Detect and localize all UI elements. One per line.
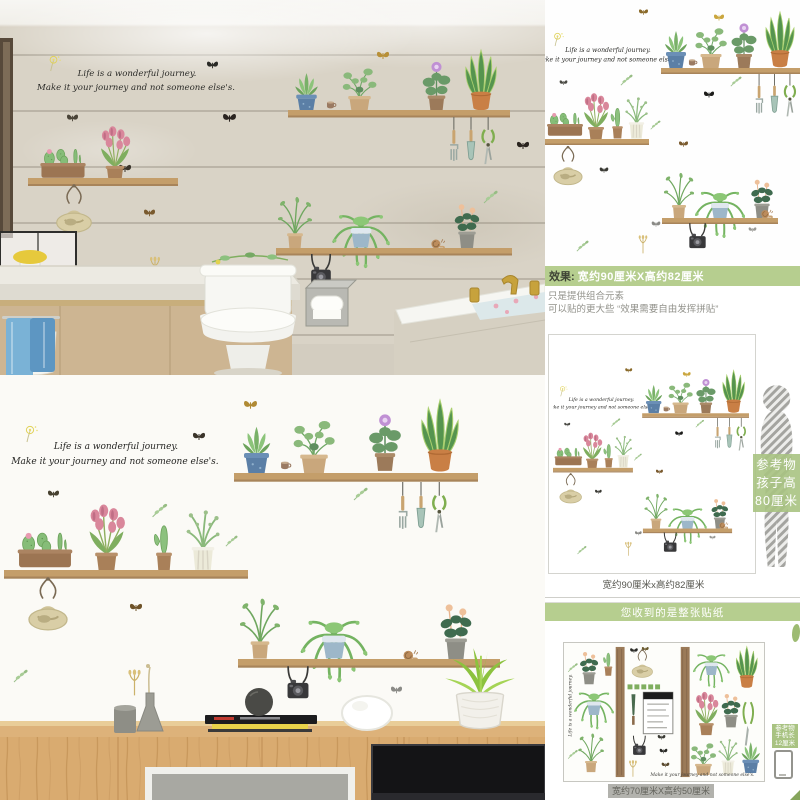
sticker-layout-artwork xyxy=(545,0,800,266)
svg-text:Life is a wonderful journey.: Life is a wonderful journey. xyxy=(53,442,178,452)
quote-card xyxy=(643,692,673,733)
toilet-paper-holder xyxy=(306,280,356,326)
sheet-size-caption: 宽约70厘米X高约50厘米 xyxy=(608,784,714,798)
desk-cabinet xyxy=(0,721,545,800)
svg-text:Make it your journey and not s: Make it your journey and not someone els… xyxy=(36,83,235,93)
phone-ref-line: 12厘米 xyxy=(775,740,795,748)
towel-rack xyxy=(2,316,60,375)
phone-reference-label: 参考物 手机长 12厘米 xyxy=(772,724,798,748)
tv-inset xyxy=(372,745,545,800)
sheet-bottom-quote: Make it your journey and not someone els… xyxy=(649,772,755,778)
child-reference-label: 参考物 孩子高 80厘米 xyxy=(753,454,800,512)
layout-size-caption: 宽约90厘米x高约82厘米 xyxy=(548,578,759,594)
child-ref-line: 孩子高 xyxy=(756,474,797,492)
sticker-layout-small xyxy=(549,335,755,573)
package-banner: 您收到的是整张贴纸 xyxy=(545,603,800,621)
phone-outline-icon xyxy=(774,750,793,779)
package-banner-text: 您收到的是整张贴纸 xyxy=(621,605,725,620)
bathtub xyxy=(394,276,545,376)
product-image-collage: Life is a wonderful journey. Make it you… xyxy=(0,0,800,800)
phone-ref-line: 手机长 xyxy=(775,732,795,740)
child-ref-line: 80厘米 xyxy=(755,492,798,510)
bathroom-artwork: Life is a wonderful journey. Make it you… xyxy=(0,0,545,375)
usage-notes: 只是提供组合元素 可以贴的更大些 “效果需要自由发挥拼贴” xyxy=(548,290,798,332)
note-line-1: 只是提供组合元素 xyxy=(548,290,798,303)
wood-bar xyxy=(616,647,625,777)
desk-artwork: Life is a wonderful journey. Make it you… xyxy=(0,375,545,800)
photo-desk-scene: Life is a wonderful journey. Make it you… xyxy=(0,375,545,800)
photo-sticker-sheet: Life is a wonderful journey. xyxy=(545,622,800,800)
sticker-sheet: Life is a wonderful journey. xyxy=(563,642,765,782)
note-line-2: 可以贴的更大些 “效果需要自由发挥拼贴” xyxy=(548,303,798,316)
size-banner-label: 效果: xyxy=(549,268,575,284)
wood-bar xyxy=(681,647,690,777)
size-banner-value: 宽约90厘米X高约82厘米 xyxy=(578,268,704,284)
photo-bathroom-scene: Life is a wonderful journey. Make it you… xyxy=(0,0,545,375)
sphere-vase xyxy=(245,688,273,716)
layout-frame xyxy=(548,334,756,574)
svg-text:Make it your journey and not s: Make it your journey and not someone els… xyxy=(10,457,218,467)
child-ref-line: 参考物 xyxy=(756,456,797,474)
sheet-vertical-quote: Life is a wonderful journey. xyxy=(567,674,573,738)
cylinder-vase xyxy=(114,705,136,733)
size-banner: 效果: 宽约90厘米X高约82厘米 xyxy=(545,266,800,286)
books-stack xyxy=(205,715,317,732)
photo-sticker-layout xyxy=(545,0,800,266)
svg-text:Life is a wonderful journey.: Life is a wonderful journey. xyxy=(77,69,197,79)
corner-photo-sliver xyxy=(788,788,800,800)
wall-sticker-overlay: Life is a wonderful journey. Make it you… xyxy=(28,50,529,284)
photo-size-reference: 参考物 孩子高 80厘米 xyxy=(545,332,800,578)
glass-bowl xyxy=(342,696,392,730)
sticker-sheet-artwork: Life is a wonderful journey. xyxy=(564,643,764,781)
